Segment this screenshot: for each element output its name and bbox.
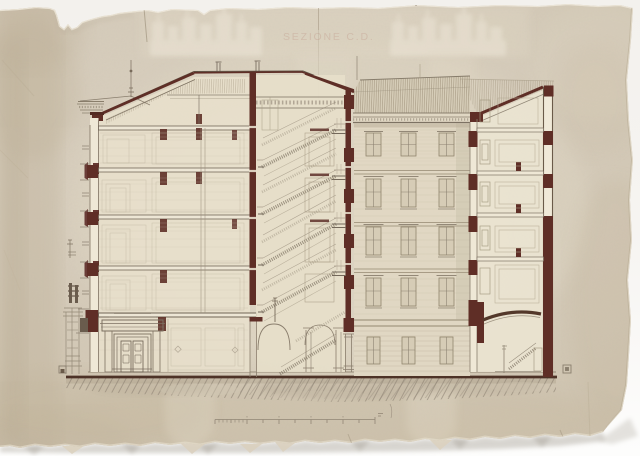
svg-text:SEZIONE C.D.: SEZIONE C.D.: [283, 31, 375, 43]
